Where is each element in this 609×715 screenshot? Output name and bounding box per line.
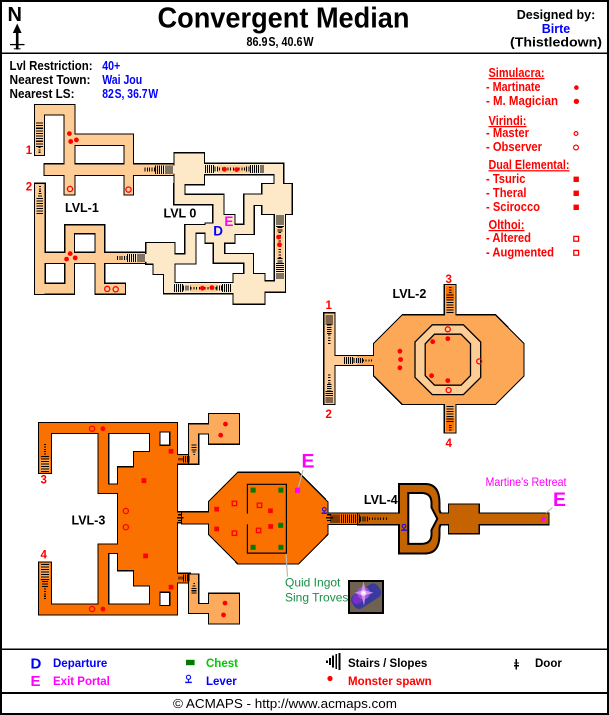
svg-text:(Thistledown): (Thistledown) xyxy=(510,36,602,50)
svg-text:E: E xyxy=(553,489,566,511)
svg-text:- Master: - Master xyxy=(486,126,529,140)
svg-text:- Augmented: - Augmented xyxy=(486,245,554,259)
svg-text:- Scirocco: - Scirocco xyxy=(486,200,540,214)
svg-text:- Observer: - Observer xyxy=(486,140,542,154)
svg-text:Lever: Lever xyxy=(206,676,237,688)
svg-text:86.9 S, 40.6 W: 86.9 S, 40.6 W xyxy=(247,35,314,49)
svg-text:Chest: Chest xyxy=(206,658,238,670)
svg-text:- Theral: - Theral xyxy=(486,186,527,200)
svg-text:Birte: Birte xyxy=(542,22,571,36)
svg-text:4: 4 xyxy=(446,438,453,450)
svg-text:Martine's Retreat: Martine's Retreat xyxy=(486,475,568,489)
svg-text:© ACMAPS - http://www.acmaps.c: © ACMAPS - http://www.acmaps.com xyxy=(173,697,397,711)
svg-text:E: E xyxy=(302,451,315,473)
svg-text:LVL-1: LVL-1 xyxy=(65,201,99,215)
svg-text:LVL 0: LVL 0 xyxy=(164,207,197,221)
svg-text:Wai Jou: Wai Jou xyxy=(102,73,142,87)
svg-text:- M. Magician: - M. Magician xyxy=(486,94,558,108)
svg-text:Designed by:: Designed by: xyxy=(517,8,596,22)
svg-text:Dual Elemental:: Dual Elemental: xyxy=(489,158,570,172)
svg-text:82 S, 36.7 W: 82 S, 36.7 W xyxy=(102,87,158,101)
svg-text:D: D xyxy=(31,655,42,672)
svg-text:E: E xyxy=(224,214,233,229)
svg-text:Lvl Restriction:: Lvl Restriction: xyxy=(10,59,93,73)
svg-text:Convergent Median: Convergent Median xyxy=(158,2,410,34)
svg-text:Olthoi:: Olthoi: xyxy=(489,218,525,232)
svg-text:Door: Door xyxy=(535,658,562,670)
svg-text:Quid Ingot: Quid Ingot xyxy=(285,576,341,590)
svg-text:N: N xyxy=(8,4,22,26)
svg-text:3: 3 xyxy=(446,274,452,286)
svg-text:40+: 40+ xyxy=(102,59,120,73)
svg-text:- Tsuric: - Tsuric xyxy=(486,172,526,186)
svg-text:4: 4 xyxy=(41,550,48,562)
svg-text:1: 1 xyxy=(326,300,333,312)
svg-text:Departure: Departure xyxy=(53,658,107,670)
svg-text:2: 2 xyxy=(326,409,332,421)
svg-text:Sing Troves: Sing Troves xyxy=(285,591,348,605)
svg-text:- Martinate: - Martinate xyxy=(486,80,541,94)
svg-text:2: 2 xyxy=(26,181,32,193)
svg-text:Exit Portal: Exit Portal xyxy=(53,676,110,688)
svg-text:Simulacra:: Simulacra: xyxy=(489,66,545,80)
svg-text:D: D xyxy=(213,223,223,238)
svg-text:Nearest LS:: Nearest LS: xyxy=(10,87,75,101)
svg-text:LVL-2: LVL-2 xyxy=(393,287,427,301)
svg-text:E: E xyxy=(31,673,41,690)
svg-text:3: 3 xyxy=(41,475,47,487)
svg-text:Stairs / Slopes: Stairs / Slopes xyxy=(348,658,427,670)
svg-text:LVL-4: LVL-4 xyxy=(364,493,398,507)
svg-text:- Altered: - Altered xyxy=(486,231,531,245)
svg-text:Nearest Town:: Nearest Town: xyxy=(10,73,91,87)
svg-text:Monster spawn: Monster spawn xyxy=(348,676,432,688)
svg-text:1: 1 xyxy=(26,145,33,157)
svg-text:LVL-3: LVL-3 xyxy=(72,514,106,528)
